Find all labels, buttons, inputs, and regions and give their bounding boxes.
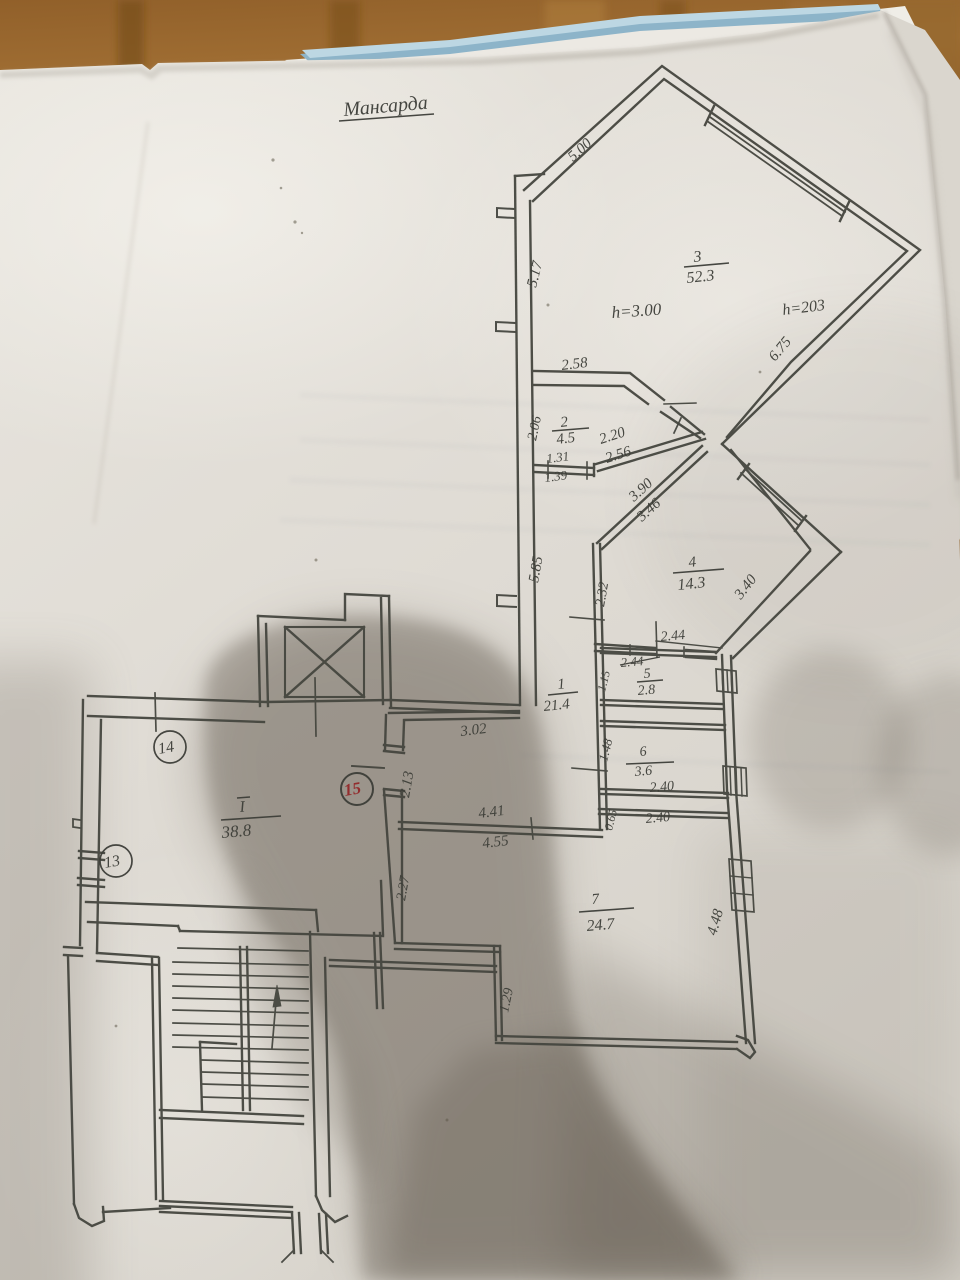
svg-text:14.3: 14.3: [677, 574, 707, 594]
svg-text:2.8: 2.8: [637, 683, 656, 699]
svg-text:13: 13: [103, 852, 122, 872]
svg-text:5: 5: [643, 666, 651, 682]
svg-text:1.31: 1.31: [546, 448, 570, 466]
svg-text:h=3.00: h=3.00: [611, 300, 662, 322]
svg-text:52.3: 52.3: [686, 267, 716, 287]
svg-text:38.8: 38.8: [220, 820, 253, 842]
svg-text:4.5: 4.5: [556, 430, 577, 448]
svg-text:1.39: 1.39: [544, 467, 569, 485]
svg-text:4.55: 4.55: [482, 833, 511, 852]
svg-text:6: 6: [639, 744, 647, 760]
svg-text:3.02: 3.02: [459, 721, 488, 740]
svg-text:3.6: 3.6: [633, 764, 653, 781]
svg-text:2.44: 2.44: [660, 628, 686, 645]
svg-text:24.7: 24.7: [586, 916, 616, 935]
svg-text:4.41: 4.41: [478, 803, 506, 822]
svg-text:21.4: 21.4: [543, 696, 571, 715]
svg-text:14: 14: [157, 738, 176, 758]
svg-text:2.40: 2.40: [645, 810, 671, 827]
svg-text:2.40: 2.40: [649, 779, 675, 796]
svg-text:2.58: 2.58: [561, 355, 590, 374]
svg-text:3: 3: [692, 248, 703, 266]
